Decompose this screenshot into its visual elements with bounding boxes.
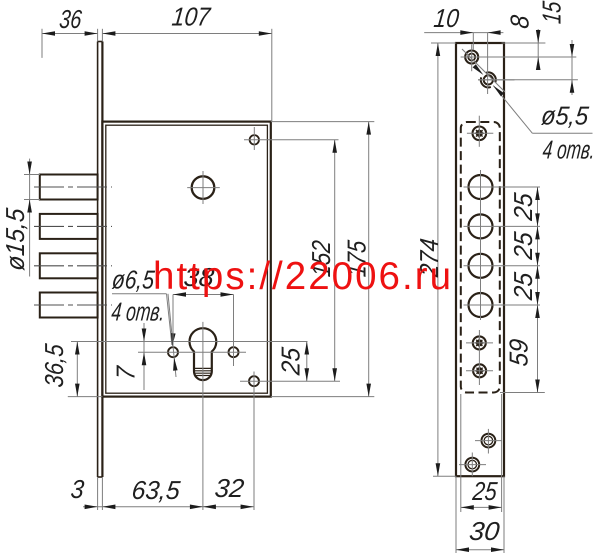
svg-text:25: 25 (508, 271, 538, 303)
svg-text:4 отв.: 4 отв. (110, 297, 166, 327)
svg-text:25: 25 (508, 191, 538, 223)
svg-text:63,5: 63,5 (130, 475, 182, 505)
svg-text:ø15,5: ø15,5 (0, 206, 30, 272)
svg-text:4 отв.: 4 отв. (541, 135, 596, 165)
svg-text:25: 25 (508, 230, 538, 262)
svg-text:15: 15 (537, 0, 567, 25)
svg-text:ø6,5: ø6,5 (111, 265, 157, 295)
svg-text:107: 107 (170, 2, 212, 32)
svg-text:ø5,5: ø5,5 (540, 101, 591, 131)
svg-text:10: 10 (432, 3, 461, 33)
svg-text:https://22006.ru: https://22006.ru (153, 255, 451, 298)
svg-text:30: 30 (468, 516, 502, 546)
svg-text:59: 59 (504, 337, 534, 367)
svg-text:32: 32 (213, 473, 246, 503)
svg-text:36: 36 (58, 4, 84, 34)
svg-text:25: 25 (276, 346, 306, 378)
svg-text:36,5: 36,5 (39, 342, 69, 389)
svg-text:25: 25 (471, 476, 499, 506)
